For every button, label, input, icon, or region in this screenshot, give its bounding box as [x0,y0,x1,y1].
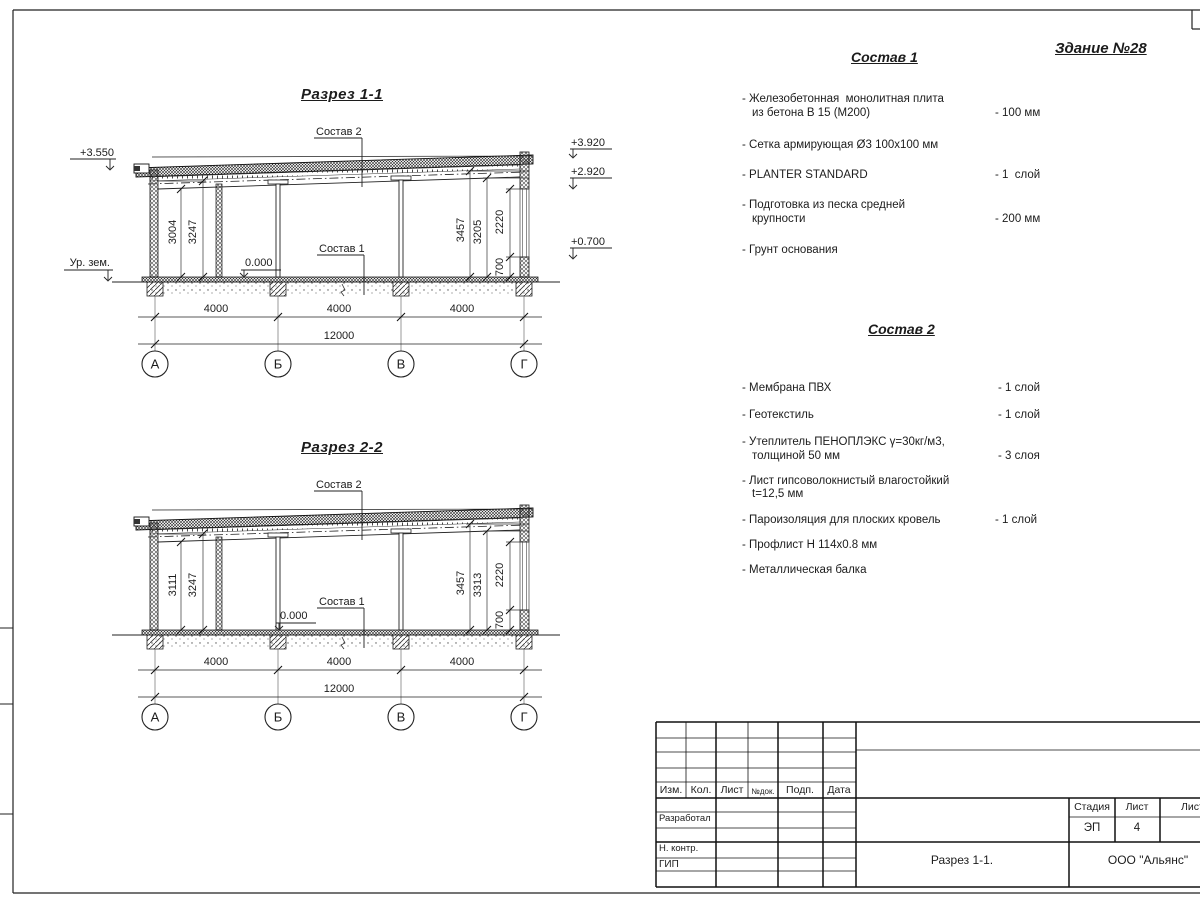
stamp-stage-value: ЭП [1084,822,1101,835]
stamp-col-data: Дата [827,784,850,796]
material-item-text: - Железобетонная монолитная плита [742,93,944,106]
stamp-col-podp: Подп. [786,784,814,796]
dim-label: 4000 [204,656,228,668]
elevation-label: +2.920 [571,166,605,179]
elevation-label: +3.920 [571,137,605,150]
dim-total-label: 12000 [324,330,355,342]
dim-label: 4000 [327,303,351,315]
material-item-value: - 1 слой [995,514,1037,527]
stamp-company: ООО "Альянс" [1108,854,1188,868]
dim-label: 3247 [187,573,199,597]
dim-label: 700 [494,258,506,276]
material-item-value: - 3 слоя [998,450,1040,463]
grid-axis-label: Б [274,357,283,372]
composition-2-title: Состав 2 [868,321,935,337]
material-item-value: - 1 слой [998,382,1040,395]
building-title: Здание №28 [1055,40,1147,57]
callout-sostav1-label: Состав 1 [319,596,365,609]
dim-label: 4000 [327,656,351,668]
dim-label: 4000 [450,303,474,315]
stamp-col-list: Лист [721,784,744,796]
material-item-text: - Геотекстиль [742,409,814,422]
stamp-sheet-label: Лист [1126,801,1149,813]
grid-axis-label: Г [520,357,527,372]
material-item-text: - Грунт основания [742,244,838,257]
dim-label: 3205 [472,220,484,244]
drawing-sheet: Здание №28 Разрез 1-1 Состав 2 Состав 1 … [0,0,1200,900]
material-item-value: - 1 слой [995,169,1040,182]
material-item-text: - Пароизоляция для плоских кровель [742,514,941,527]
zero-level-label: 0.000 [280,610,308,623]
elevation-label: +0.700 [571,236,605,249]
dim-label: 3457 [455,218,467,242]
grid-axis-label: А [151,357,160,372]
material-item-text: - Утеплитель ПЕНОПЛЭКС γ=30кг/м3, [742,436,945,449]
section-1-title: Разрез 1-1 [301,86,383,103]
dim-label: 4000 [204,303,228,315]
stamp-col-izm: Изм. [660,784,683,796]
stamp-sheets-label: Листов [1181,801,1200,813]
stamp-col-kol: Кол. [691,784,712,796]
stamp-row-developed: Разработал [659,814,711,825]
zero-level-label: 0.000 [245,257,273,270]
grid-axis-label: А [151,710,160,725]
stamp-row-gip: ГИП [659,859,679,871]
section-2-2-drawing [112,505,560,730]
material-item-text: - Лист гипсоволокнистый влагостойкий [742,475,949,488]
grid-axis-label: Б [274,710,283,725]
material-item-text: толщиной 50 мм [752,450,840,463]
dim-label: 2220 [494,210,506,234]
dim-label: 3313 [472,573,484,597]
dim-label: 3457 [455,571,467,595]
material-item-text: из бетона В 15 (М200) [752,107,870,120]
material-item-text: t=12,5 мм [752,488,803,501]
dim-total-label: 12000 [324,683,355,695]
material-item-text: - Металлическая балка [742,564,866,577]
stamp-row-ncontrol: Н. контр. [659,844,698,855]
material-item-text: - Подготовка из песка средней [742,199,905,212]
material-item-text: крупности [752,213,805,226]
dim-label: 3111 [167,574,179,597]
material-item-value: - 200 мм [995,213,1040,226]
dim-label: 3004 [167,220,179,244]
material-item-text: - Профлист Н 114х0.8 мм [742,539,877,552]
material-item-value: - 1 слой [998,409,1040,422]
composition-1-title: Состав 1 [851,49,918,65]
elevation-label: +3.550 [68,147,114,160]
dim-label: 700 [494,611,506,629]
section-2-title: Разрез 2-2 [301,439,383,456]
callout-sostav2-label: Состав 2 [316,126,362,139]
stamp-col-ndok: №док. [751,787,774,796]
section-1-1-drawing [112,152,560,377]
material-item-value: - 100 мм [995,107,1040,120]
ground-level-label: Ур. зем. [62,257,110,270]
grid-axis-label: В [397,357,406,372]
dim-label: 4000 [450,656,474,668]
callout-sostav2-label: Состав 2 [316,479,362,492]
stamp-stage-label: Стадия [1074,801,1110,813]
material-item-text: - Мембрана ПВХ [742,382,831,395]
stamp-doc-title: Разрез 1-1. [931,854,993,868]
material-item-text: - Сетка армирующая Ø3 100х100 мм [742,139,938,152]
grid-axis-label: В [397,710,406,725]
grid-axis-label: Г [520,710,527,725]
material-item-text: - PLANTER STANDARD [742,169,868,182]
fold-marks [0,628,13,814]
callout-sostav1-label: Состав 1 [319,243,365,256]
dim-label: 3247 [187,220,199,244]
dim-label: 2220 [494,563,506,587]
stamp-sheet-value: 4 [1134,822,1140,835]
